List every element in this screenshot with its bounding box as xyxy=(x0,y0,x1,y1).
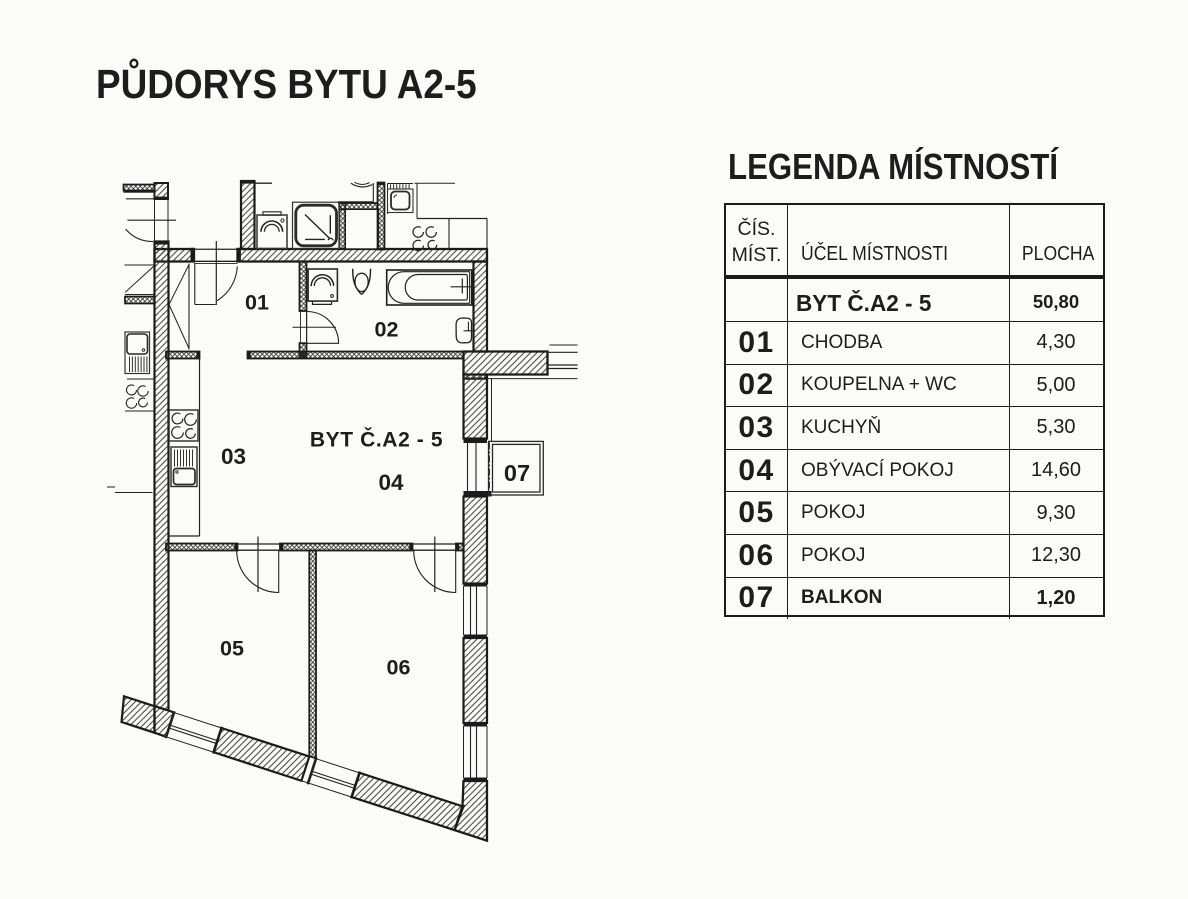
svg-text:03: 03 xyxy=(221,444,246,469)
svg-text:07: 07 xyxy=(504,460,530,486)
svg-text:06: 06 xyxy=(387,656,411,680)
svg-text:BYT Č.A2 - 5: BYT Č.A2 - 5 xyxy=(310,428,443,452)
svg-text:02: 02 xyxy=(375,318,399,342)
svg-text:05: 05 xyxy=(220,637,244,661)
svg-text:01: 01 xyxy=(245,291,269,315)
svg-text:04: 04 xyxy=(378,470,404,495)
